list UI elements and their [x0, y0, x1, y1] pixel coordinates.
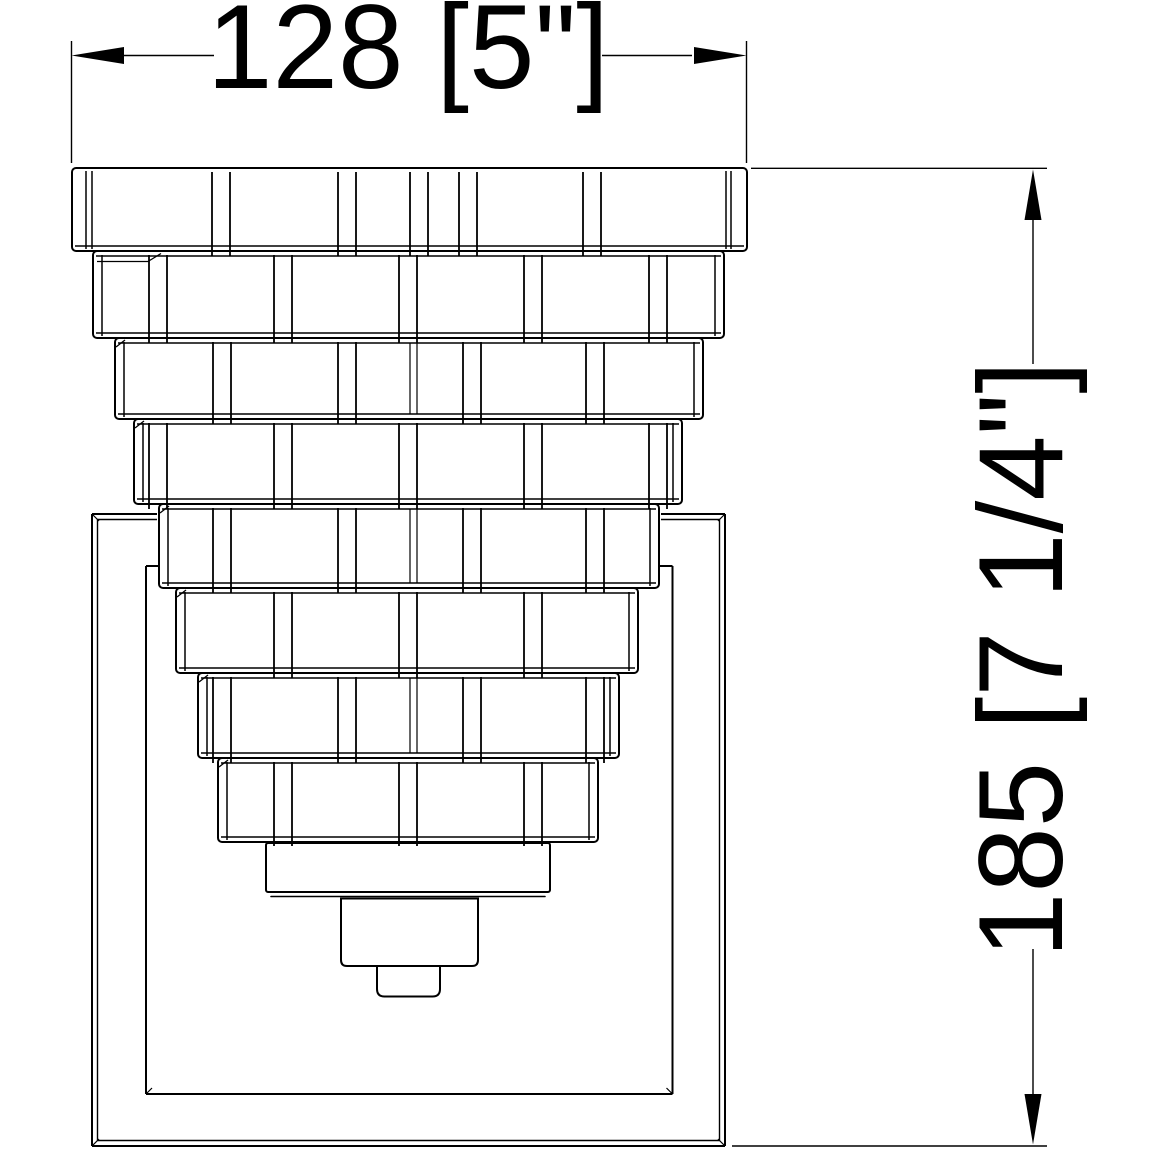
svg-text:128 [5"]: 128 [5"]: [207, 0, 609, 114]
svg-text:185 [7 1/4"]: 185 [7 1/4"]: [954, 361, 1088, 958]
